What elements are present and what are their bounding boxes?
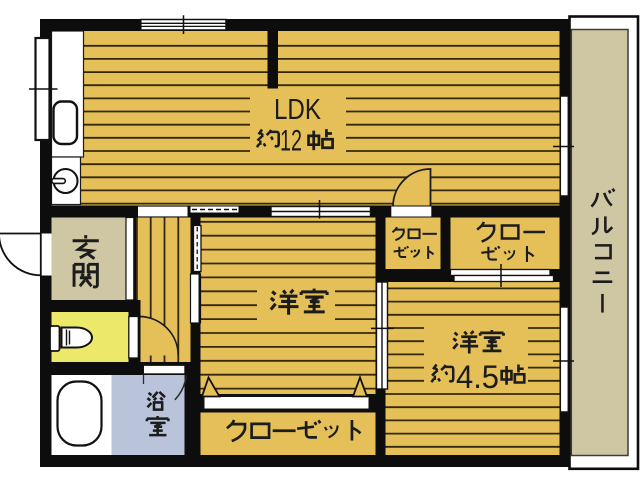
svg-text:LDK: LDK (274, 94, 322, 126)
svg-text:12: 12 (280, 125, 302, 158)
svg-text:4.5: 4.5 (456, 359, 499, 395)
